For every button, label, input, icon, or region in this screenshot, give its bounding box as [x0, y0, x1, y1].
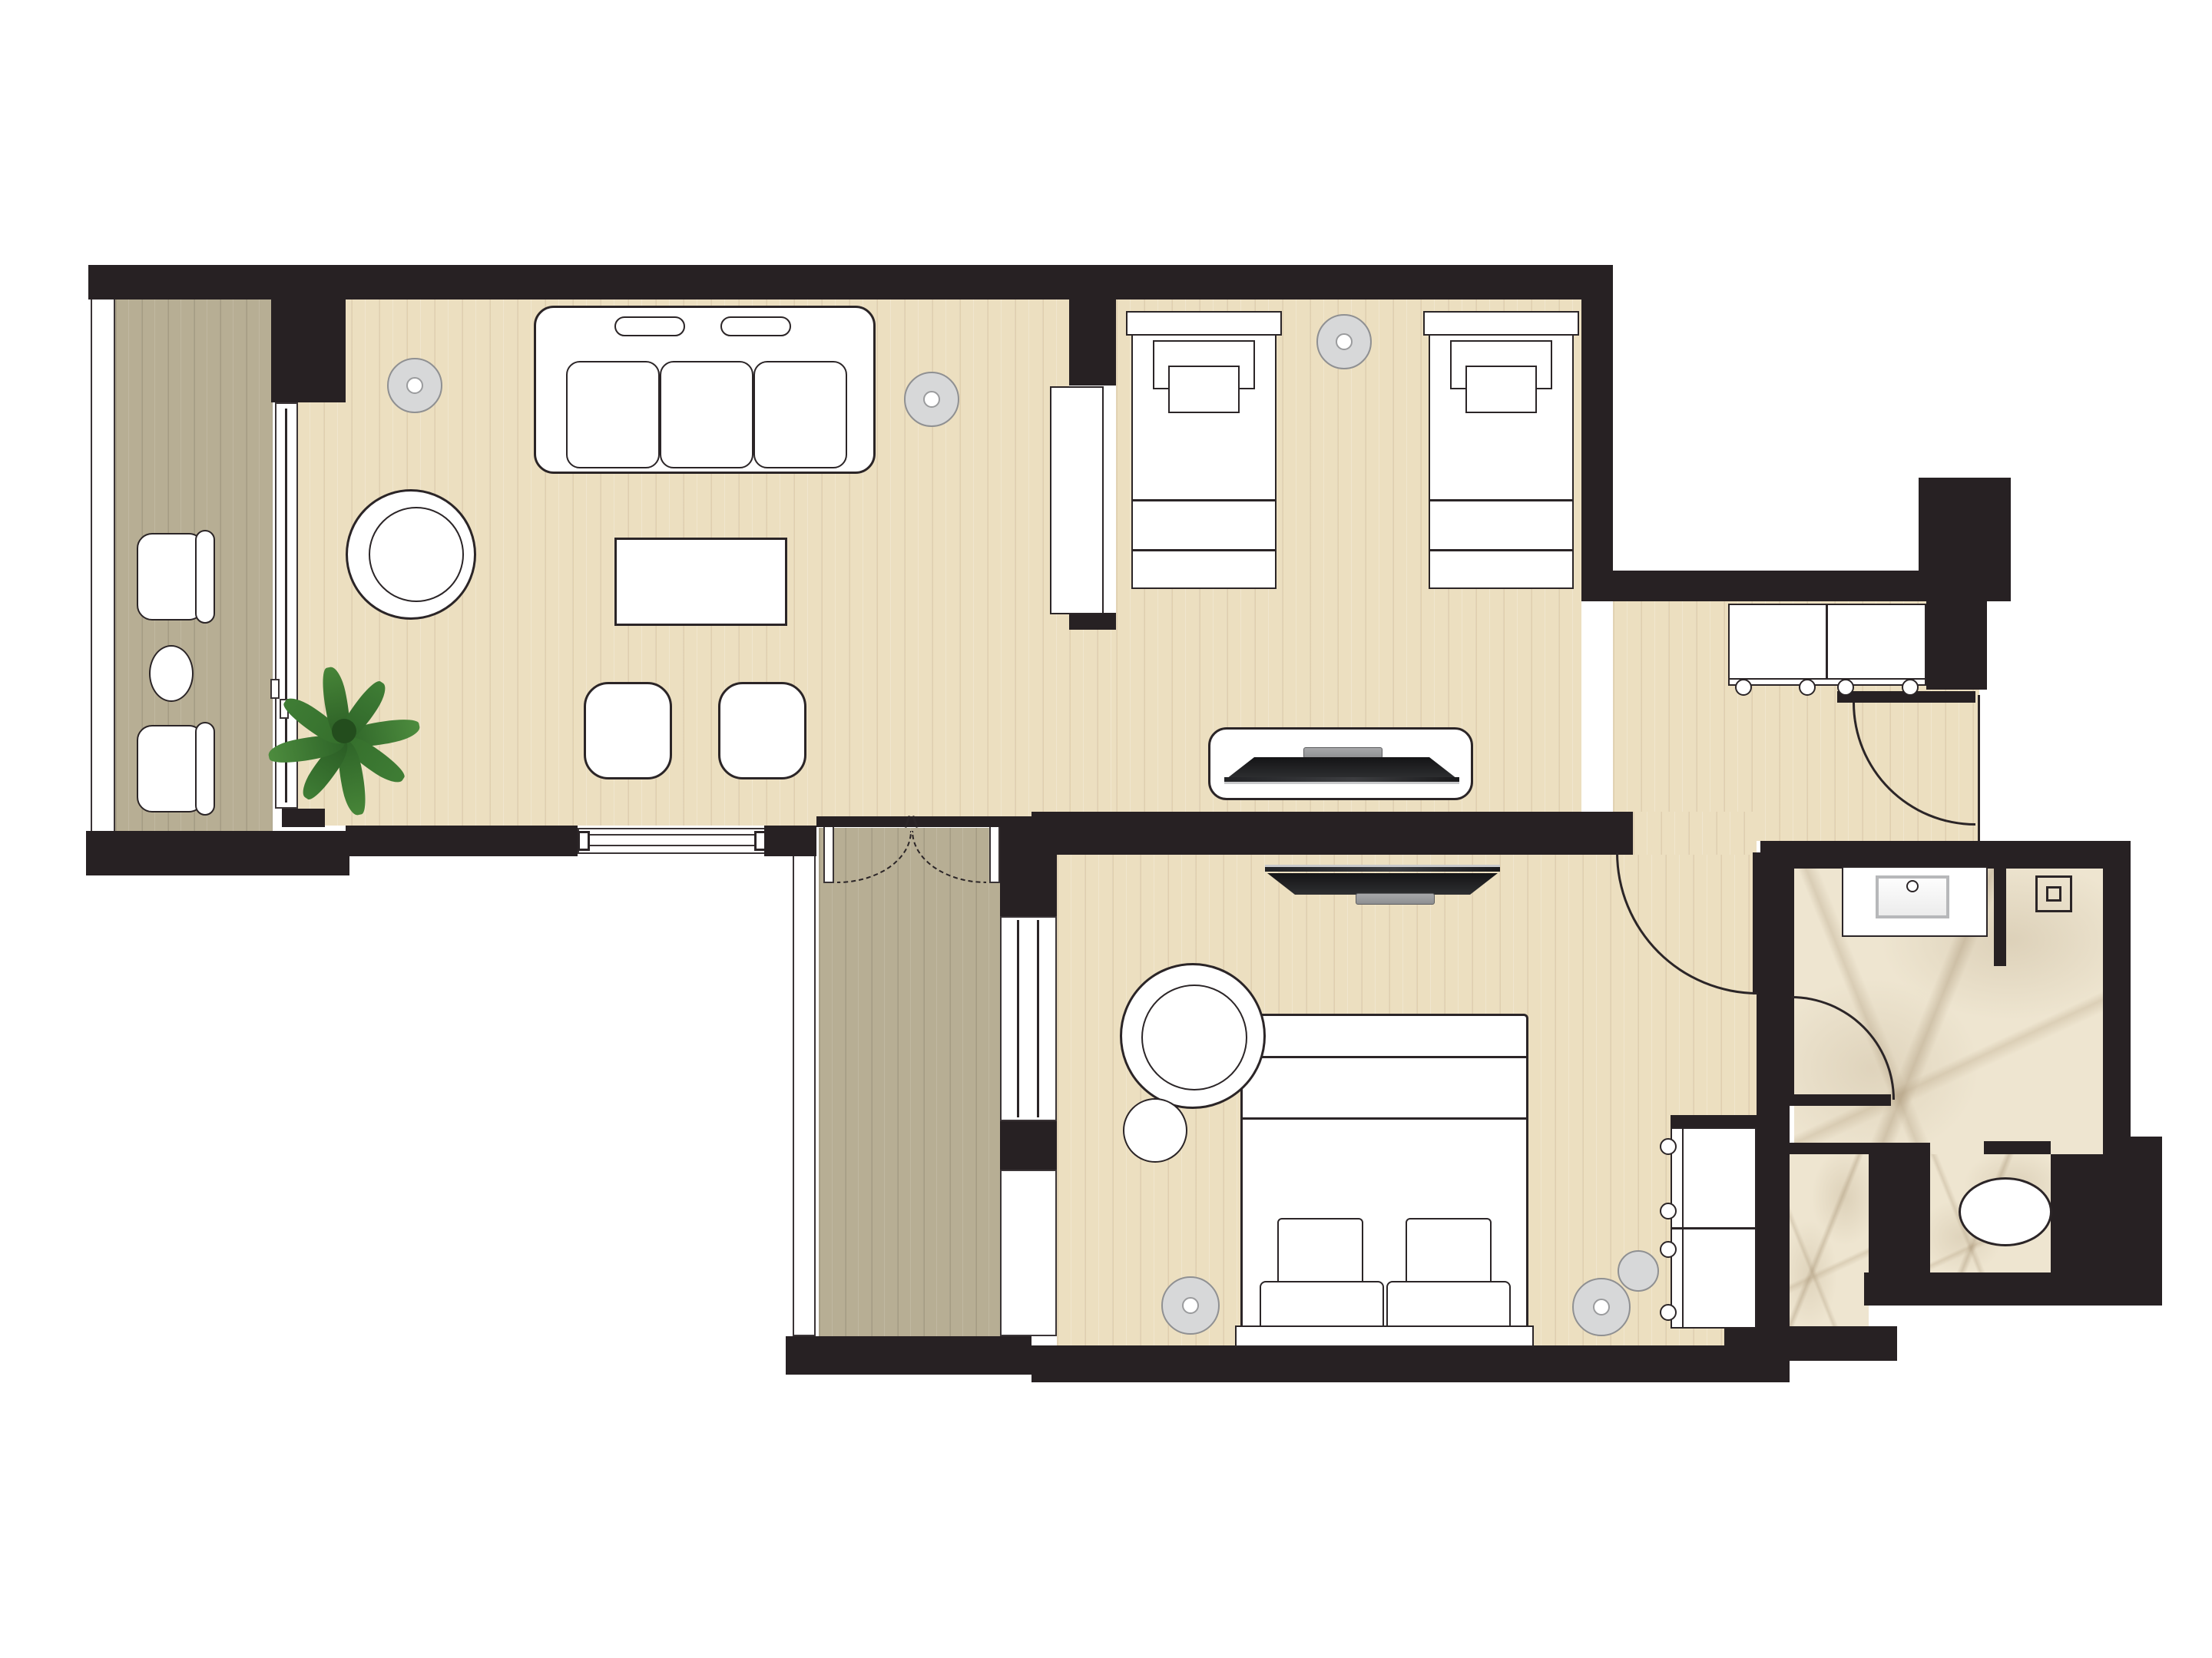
master-bed-blanket-line: [1243, 1056, 1526, 1058]
balcony-armchair-back: [195, 722, 215, 816]
wall-divider-bottom: [1069, 613, 1116, 630]
master-side-table: [1123, 1098, 1187, 1163]
wall-bath-center-block: [1869, 1143, 1930, 1276]
master-bed-blanket-line: [1243, 1117, 1526, 1120]
balcony-door-jamb: [823, 823, 834, 883]
wall-bathroom-east-upper: [2103, 841, 2131, 1137]
wall-shower-partition: [1994, 869, 2006, 966]
living-south-window-cap: [578, 831, 590, 851]
ceiling-light-dot: [923, 391, 940, 408]
ceiling-light-dot: [1182, 1297, 1199, 1314]
wall-balcony-door-step: [282, 809, 325, 827]
wall-master-south: [1031, 1345, 1790, 1382]
wall-living-south-west: [346, 826, 578, 856]
twin-bed-blanket-line: [1430, 499, 1572, 501]
closet-track-roller: [1902, 679, 1919, 696]
ceiling-light-dot: [406, 377, 423, 394]
plant-center: [332, 719, 356, 743]
wall-closet-east-block: [1926, 601, 1987, 690]
wardrobe-hanger-knob: [1660, 1241, 1677, 1258]
balcony-left-railing: [91, 283, 115, 837]
master-west-window: [1000, 916, 1057, 1121]
master-lounge-chair-seat: [1141, 985, 1247, 1090]
tv-screen: [1265, 865, 1500, 872]
sofa-seat-cushion: [753, 361, 847, 468]
wall-balcony-lower-east-pier2: [1000, 1121, 1057, 1170]
wall-corridor-north: [1581, 571, 2011, 601]
master-west-window-line: [1037, 920, 1039, 1117]
balcony-door-jamb: [989, 823, 1000, 883]
tv-stand: [1356, 893, 1435, 905]
tv-stand: [1303, 747, 1382, 759]
lounge-chair-seat: [369, 507, 464, 602]
ceiling-light-dot: [1336, 333, 1353, 350]
balcony-armchair-back: [195, 530, 215, 624]
living-south-window-track: [588, 834, 756, 846]
twin-bed-headboard: [1423, 311, 1579, 336]
sofa-seat-cushion: [566, 361, 660, 468]
wall-entry-column: [1919, 478, 2011, 571]
master-west-window-line: [1017, 920, 1019, 1117]
floor-master-door-patch: [1633, 812, 1757, 855]
closet-track: [1728, 678, 1926, 686]
wall-divider-top: [1069, 299, 1116, 386]
wall-corridor-east-edge: [1978, 695, 1980, 841]
floor-plan: [0, 0, 2212, 1658]
twin-bed-headboard: [1126, 311, 1282, 336]
wall-bathroom-west: [1760, 869, 1794, 1094]
wall-balcony-lower-south: [786, 1336, 1031, 1375]
twin-bed-blanket-line: [1133, 549, 1275, 551]
wall-balcony-lower-east-pier: [1000, 816, 1057, 916]
wall-niche-stub: [1984, 1141, 2051, 1154]
balcony-lower-railing: [793, 836, 816, 1336]
wall-bath-lower-south: [1724, 1326, 1897, 1361]
balcony-lower-glass-panel: [1000, 1170, 1057, 1336]
twin-bed-blanket-line: [1430, 549, 1572, 551]
wall-wardrobe-stub: [1671, 1115, 1764, 1127]
closet-track-roller: [1837, 679, 1854, 696]
toilet: [1959, 1177, 2052, 1246]
floor-passage-divider: [1069, 630, 1116, 812]
tv-back: [1227, 757, 1457, 779]
twin-bed-pillow-inner: [1465, 366, 1537, 413]
wardrobe-rail: [1682, 1129, 1684, 1327]
twin-bed-pillow-inner: [1168, 366, 1240, 413]
balcony-armchair-seat: [137, 725, 204, 812]
pouf-stool: [718, 682, 806, 779]
wall-twin-east: [1581, 299, 1613, 571]
pouf-stool: [584, 682, 672, 779]
coffee-table: [614, 538, 787, 626]
wall-top: [88, 265, 1613, 299]
wardrobe-hanger-knob: [1660, 1203, 1677, 1220]
closet-door-divider: [1826, 605, 1828, 679]
sofa-seat-cushion: [660, 361, 753, 468]
wall-living-balcony-pier: [271, 299, 346, 402]
sofa-pillow: [720, 316, 791, 336]
ceiling-light: [1618, 1250, 1659, 1292]
wall-living-south-east: [764, 826, 816, 856]
wardrobe-divider: [1672, 1227, 1755, 1229]
tv-back: [1267, 873, 1498, 895]
wall-master-north-band: [1031, 812, 1633, 855]
wall-bath-door-stub-b: [1786, 1143, 1877, 1154]
wardrobe-hanger-knob: [1660, 1138, 1677, 1155]
shower-drain-inner: [2046, 886, 2061, 902]
twin-bed-blanket-line: [1133, 499, 1275, 501]
ceiling-light-dot: [1593, 1299, 1610, 1315]
wall-bathroom-north: [1760, 841, 2131, 869]
vanity-faucet: [1906, 880, 1919, 892]
media-panel: [1050, 386, 1104, 614]
wall-bathroom-south: [1864, 1272, 2162, 1306]
sliding-door-handle: [270, 679, 280, 699]
wardrobe-hanger-knob: [1660, 1304, 1677, 1321]
floor-balcony-lower: [819, 828, 1000, 1336]
master-bed-headboard: [1235, 1325, 1534, 1347]
closet-track-roller: [1735, 679, 1752, 696]
wall-balcony-left-south: [86, 831, 349, 875]
floor-bathroom-lower: [1790, 1154, 1869, 1326]
balcony-armchair-seat: [137, 533, 204, 621]
balcony-side-table: [149, 645, 194, 702]
closet-track-roller: [1799, 679, 1816, 696]
tv-screen: [1224, 777, 1459, 784]
sofa-pillow: [614, 316, 685, 336]
